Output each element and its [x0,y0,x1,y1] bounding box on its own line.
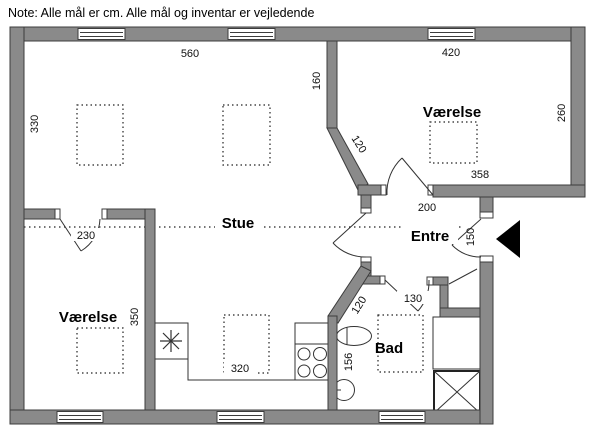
wardrobe-door-line [449,269,477,284]
door-bedroom-ne [387,158,433,195]
dim-bedroom-ne-width-bottom: 358 [471,169,489,181]
window [217,412,264,423]
windows [57,29,475,423]
furniture-outline [223,105,270,165]
stue-divider-wall [327,41,337,128]
dim-diag-upper: 120 [349,133,369,155]
dim-kitchen-width: 320 [231,363,249,375]
dim-bedroom-ne-height: 260 [556,104,568,122]
window [379,412,425,423]
closet-box [433,317,480,369]
room-label-bad: Bad [375,340,403,357]
wardrobe-south-wall [440,308,480,317]
exterior-wall-right-lower-b [480,262,493,424]
window [57,412,103,423]
dim-bedroom-sw-height: 350 [129,308,141,326]
floor-plan: Note: Alle mål er cm. Alle mål og invent… [0,0,600,434]
dim-bedroom-ne-width-top: 420 [442,47,460,59]
kitchen-sink-icon [160,330,182,352]
bath-north-wall-east [433,277,448,285]
dim-hall-wall-upper: 160 [311,72,323,90]
toilet-icon [337,327,372,346]
bedroom-ne-south-wall [433,185,585,197]
exterior-wall-left [10,27,24,424]
bedroom-sw-right-wall [145,209,155,410]
door-stue-entry [333,213,366,257]
dim-bedroom-sw-door: 230 [77,230,95,242]
furniture-outline [430,122,477,163]
exterior-wall-right-upper [571,27,585,197]
diagonal-wall-lower [328,266,371,323]
exterior-wall-right-lower-a [480,197,493,213]
dim-bath-width: 156 [343,353,355,371]
dim-stue-width: 560 [181,48,199,60]
window [428,29,475,40]
dim-entry-width: 200 [418,202,436,214]
window [228,29,275,40]
dim-stue-height: 330 [29,115,41,133]
room-label-vaerelse-ne: Værelse [423,104,481,121]
window [78,29,125,40]
bath-west-wall [328,316,337,410]
floor-plan-drawing: 560 420 330 160 120 260 358 200 150 230 … [0,0,600,434]
dim-bath-door: 130 [404,293,422,305]
entrance-arrow-icon [496,220,520,258]
room-label-stue: Stue [222,215,255,232]
dim-entry-door: 150 [465,228,477,246]
bedroom-sw-top-wall-right [102,209,150,219]
room-labels: Stue Entre Bad Værelse Værelse [59,104,481,357]
furniture-outline [77,105,123,165]
room-label-entre: Entre [411,228,449,245]
room-label-vaerelse-sw: Værelse [59,309,117,326]
furniture-outline [77,328,123,373]
